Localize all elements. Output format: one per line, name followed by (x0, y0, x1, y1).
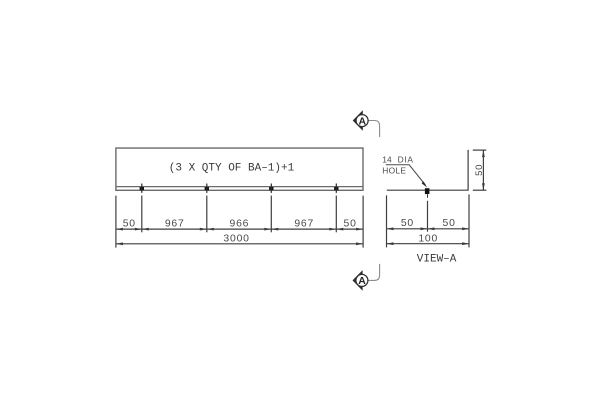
svg-text:100: 100 (418, 233, 438, 244)
svg-text:50: 50 (474, 164, 485, 176)
svg-text:50: 50 (344, 219, 357, 230)
svg-text:14: 14 (382, 154, 392, 164)
svg-text:A: A (358, 276, 366, 287)
svg-text:966: 966 (230, 219, 250, 230)
svg-text:HOLE: HOLE (382, 166, 406, 176)
svg-text:(3 X QTY OF BA–1)+1: (3 X QTY OF BA–1)+1 (169, 162, 295, 174)
svg-text:50: 50 (401, 218, 414, 229)
svg-text:50: 50 (123, 219, 136, 230)
svg-text:VIEW–A: VIEW–A (417, 253, 457, 265)
svg-text:DIA: DIA (398, 154, 414, 164)
svg-text:967: 967 (294, 219, 314, 230)
svg-text:50: 50 (443, 218, 456, 229)
svg-text:967: 967 (165, 219, 185, 230)
svg-text:3000: 3000 (223, 234, 249, 245)
svg-text:A: A (358, 116, 366, 127)
